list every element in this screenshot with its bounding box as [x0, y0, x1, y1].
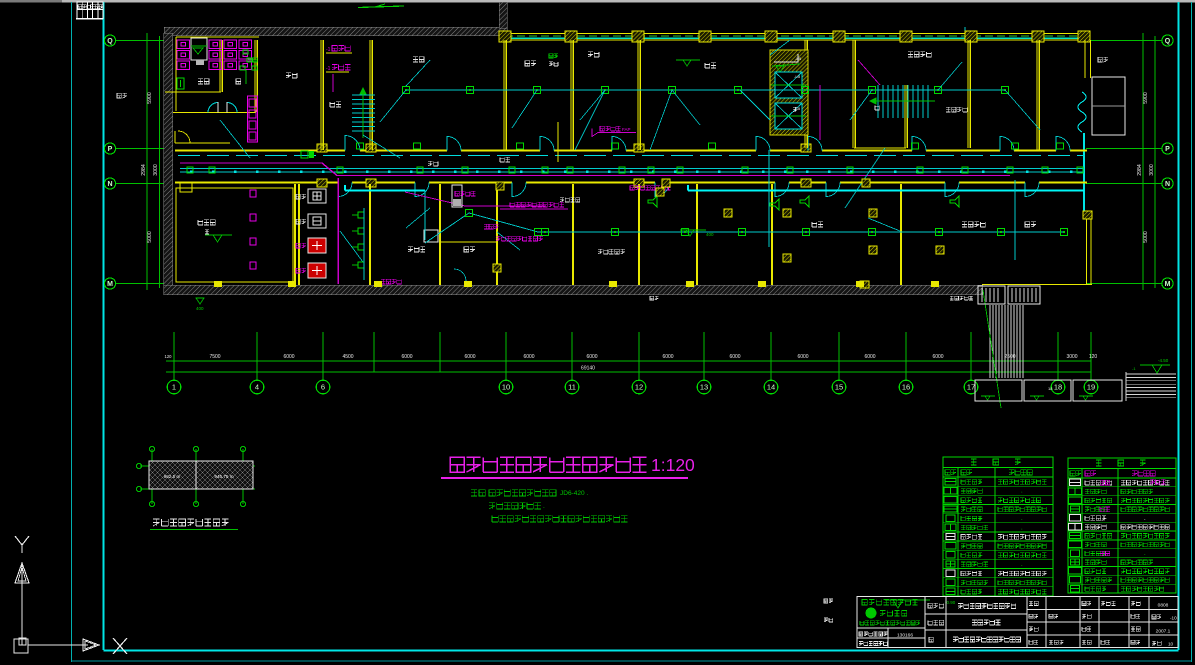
svg-text:6: 6	[321, 383, 325, 392]
svg-text:.: .	[543, 503, 545, 510]
svg-text:P: P	[108, 146, 113, 153]
svg-text:FAP: FAP	[622, 127, 631, 132]
svg-text:400: 400	[706, 232, 714, 237]
svg-text:6000: 6000	[283, 354, 294, 360]
svg-text:-1: -1	[326, 66, 331, 72]
svg-text:Q: Q	[1165, 38, 1171, 45]
svg-text:19: 19	[1087, 383, 1095, 392]
svg-text:N: N	[1165, 181, 1170, 188]
svg-text:7500: 7500	[209, 354, 220, 360]
svg-text:6000: 6000	[729, 354, 740, 360]
svg-text:N: N	[107, 181, 112, 188]
svg-text:6000: 6000	[586, 354, 597, 360]
svg-text:6000: 6000	[662, 354, 673, 360]
svg-text:11: 11	[568, 383, 576, 392]
svg-text:10: 10	[502, 383, 510, 392]
svg-text:6000: 6000	[401, 354, 412, 360]
svg-text:1:120: 1:120	[651, 455, 695, 475]
svg-text:5000: 5000	[147, 231, 153, 243]
svg-text:6000: 6000	[797, 354, 808, 360]
svg-text:982.5 m: 982.5 m	[164, 474, 181, 479]
svg-text:69140: 69140	[581, 366, 595, 372]
svg-text:-10: -10	[1170, 615, 1177, 620]
svg-text:15: 15	[835, 383, 843, 392]
svg-text:2984: 2984	[1137, 164, 1143, 176]
svg-text:13: 13	[700, 383, 708, 392]
svg-text:6000: 6000	[464, 354, 475, 360]
svg-text:6000: 6000	[864, 354, 875, 360]
svg-text:3000: 3000	[1066, 354, 1077, 360]
svg-text:-LB: -LB	[794, 74, 801, 79]
svg-text:-4.50: -4.50	[1158, 358, 1169, 363]
svg-text:5000: 5000	[1143, 231, 1149, 243]
svg-text:4500: 4500	[342, 354, 353, 360]
svg-text:M: M	[1165, 281, 1171, 288]
svg-text:400: 400	[196, 306, 204, 311]
svg-text:M: M	[107, 281, 113, 288]
svg-text:6000: 6000	[932, 354, 943, 360]
svg-text:1: 1	[172, 383, 176, 392]
svg-text:-0.90: -0.90	[945, 600, 956, 605]
svg-text:3000: 3000	[153, 164, 159, 176]
svg-text:16: 16	[902, 383, 910, 392]
svg-text:5900: 5900	[147, 92, 153, 104]
svg-text:-1: -1	[326, 47, 331, 53]
svg-text:0808: 0808	[1158, 603, 1169, 609]
svg-text:10: 10	[1168, 642, 1174, 647]
svg-text:2007.1: 2007.1	[1156, 628, 1171, 634]
svg-text:5900: 5900	[1143, 92, 1149, 104]
svg-text:P: P	[1165, 146, 1170, 153]
svg-text:18: 18	[1054, 383, 1062, 392]
svg-text:-LB: -LB	[795, 56, 802, 61]
svg-text:Q: Q	[107, 38, 113, 45]
svg-text:18: 18	[1048, 386, 1053, 391]
svg-text:946.75 m: 946.75 m	[214, 474, 233, 479]
svg-text:2984: 2984	[141, 164, 147, 176]
svg-text:3000: 3000	[1149, 164, 1155, 176]
svg-text:JD6-420 .: JD6-420 .	[560, 490, 588, 497]
svg-text:12: 12	[635, 383, 643, 392]
svg-text:6000: 6000	[523, 354, 534, 360]
svg-text:17: 17	[967, 383, 975, 392]
svg-text:14: 14	[767, 383, 775, 392]
svg-text:120: 120	[165, 354, 173, 359]
svg-text:120: 120	[1089, 354, 1098, 360]
svg-text:130166: 130166	[897, 633, 913, 639]
svg-text:4: 4	[255, 383, 259, 392]
